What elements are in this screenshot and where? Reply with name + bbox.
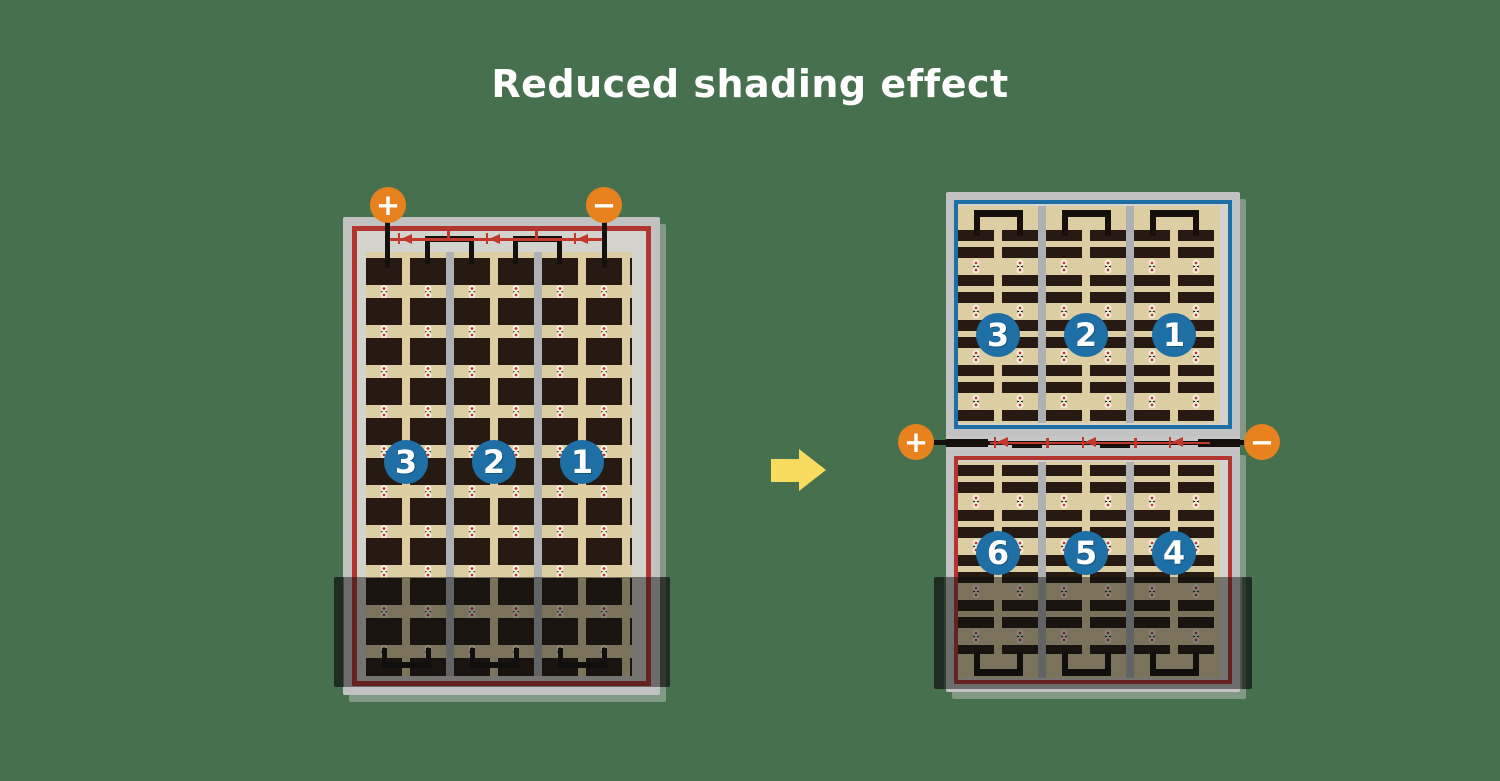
arrow-head — [799, 449, 826, 491]
half-cut-panel-top: 3 2 1 — [946, 192, 1240, 437]
junction-strip — [946, 436, 1240, 450]
cell-field: 3 2 1 — [958, 206, 1220, 423]
string-badge: 4 — [1152, 531, 1196, 575]
shading-overlay — [334, 577, 670, 687]
bypass-diode-icon — [1085, 437, 1096, 447]
diode-tap — [535, 231, 538, 239]
diode-tap — [1046, 438, 1049, 448]
string-badge: 2 — [1064, 313, 1108, 357]
string-badge: 1 — [560, 440, 604, 484]
bus-block — [946, 439, 988, 447]
plus-terminal: + — [370, 187, 406, 223]
shading-overlay — [934, 577, 1252, 689]
full-cell-panel: 3 2 1 — [343, 217, 660, 695]
terminal-stem — [385, 222, 390, 268]
interconnect-bridge — [974, 210, 1023, 236]
string-badge: 3 — [384, 440, 428, 484]
string-separator — [1126, 206, 1134, 423]
diode-tap — [1134, 438, 1137, 448]
transition-arrow-icon — [771, 449, 826, 492]
reduced-shading-diagram: Reduced shading effect 3 2 1 — [0, 0, 1500, 781]
minus-terminal: − — [586, 187, 622, 223]
bus-stub — [1100, 444, 1130, 448]
string-badge: 6 — [976, 531, 1020, 575]
bypass-diode-icon — [997, 437, 1008, 447]
bypass-diode-icon — [401, 234, 412, 244]
string-badge: 5 — [1064, 531, 1108, 575]
diode-line — [388, 238, 604, 241]
diode-tap — [447, 231, 450, 239]
interconnect-bridge — [1062, 210, 1111, 236]
string-badge: 3 — [976, 313, 1020, 357]
arrow-body — [771, 459, 801, 482]
bus-stub — [1012, 444, 1042, 448]
plus-terminal: + — [898, 424, 934, 460]
string-separator — [1038, 206, 1046, 423]
terminal-stem — [933, 440, 948, 445]
terminal-stem — [602, 222, 607, 268]
bypass-diode-icon — [1172, 437, 1183, 447]
half-cut-panel-bottom: 6 5 4 — [946, 448, 1240, 692]
interconnect-bridge — [1150, 210, 1199, 236]
diode-line — [990, 442, 1210, 445]
string-badge: 2 — [472, 440, 516, 484]
bypass-diode-icon — [577, 234, 588, 244]
bypass-diode-icon — [489, 234, 500, 244]
string-badge: 1 — [1152, 313, 1196, 357]
page-title: Reduced shading effect — [0, 62, 1500, 106]
minus-terminal: − — [1244, 424, 1280, 460]
